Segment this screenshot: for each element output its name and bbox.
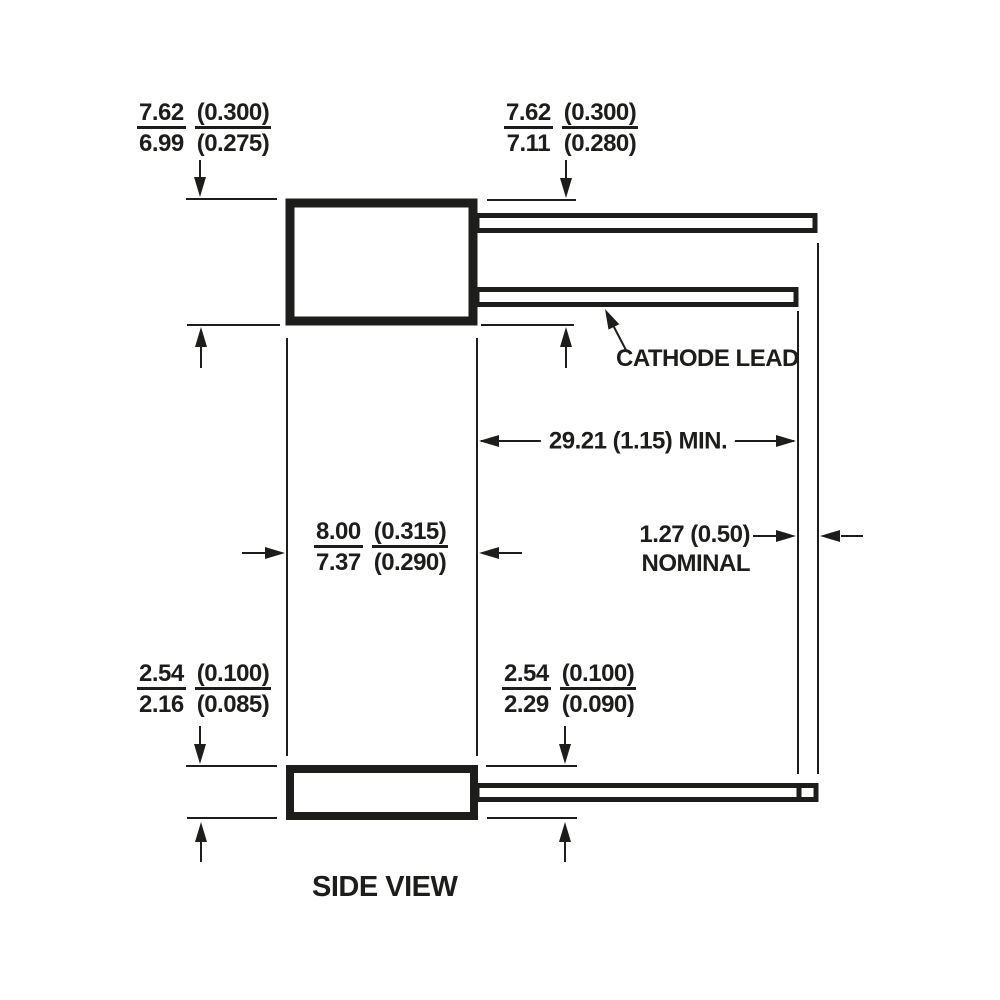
dim-body-height-right: 7.62 7.11 (0.300) (0.280) <box>504 100 638 156</box>
dim-inch-fraction: (0.315) (0.290) <box>372 519 449 575</box>
dim-lead-offset-qualifier: NOMINAL <box>620 549 750 578</box>
cathode-lead <box>477 290 796 305</box>
side-view-mechanical-drawing: 7.62 6.99 (0.300) (0.275) 7.62 7.11 (0.3… <box>0 0 1000 1000</box>
dim-inch-fraction: (0.300) (0.275) <box>195 100 272 156</box>
dim-lead-length-min: 29.21 (1.15) MIN. <box>541 428 735 453</box>
dim-base-height-right: 2.54 2.29 (0.100) (0.090) <box>502 661 636 717</box>
lower-body-outline <box>290 769 474 816</box>
dim-mm-fraction: 8.00 7.37 <box>314 519 363 575</box>
dim-inch-fraction: (0.300) (0.280) <box>562 100 639 156</box>
dim-mm-fraction: 2.54 2.29 <box>502 661 551 717</box>
cathode-lead-label: CATHODE LEAD <box>616 346 799 371</box>
dim-inch-fraction: (0.100) (0.085) <box>195 661 272 717</box>
led-body-outline <box>290 203 473 321</box>
anode-lead <box>477 216 815 231</box>
dim-body-width: 8.00 7.37 (0.315) (0.290) <box>314 519 448 575</box>
dim-inch-fraction: (0.100) (0.090) <box>560 661 637 717</box>
dim-mm-fraction: 7.62 7.11 <box>504 100 553 156</box>
dim-body-height-left: 7.62 6.99 (0.300) (0.275) <box>137 100 271 156</box>
dim-lead-offset-nominal: 1.27 (0.50) NOMINAL <box>620 520 750 578</box>
lower-lead <box>477 783 816 801</box>
view-title: SIDE VIEW <box>312 872 457 902</box>
dim-mm-fraction: 7.62 6.99 <box>137 100 186 156</box>
dim-base-height-left: 2.54 2.16 (0.100) (0.085) <box>137 661 271 717</box>
dim-lead-offset-value: 1.27 (0.50) <box>620 520 750 549</box>
dim-mm-fraction: 2.54 2.16 <box>137 661 186 717</box>
